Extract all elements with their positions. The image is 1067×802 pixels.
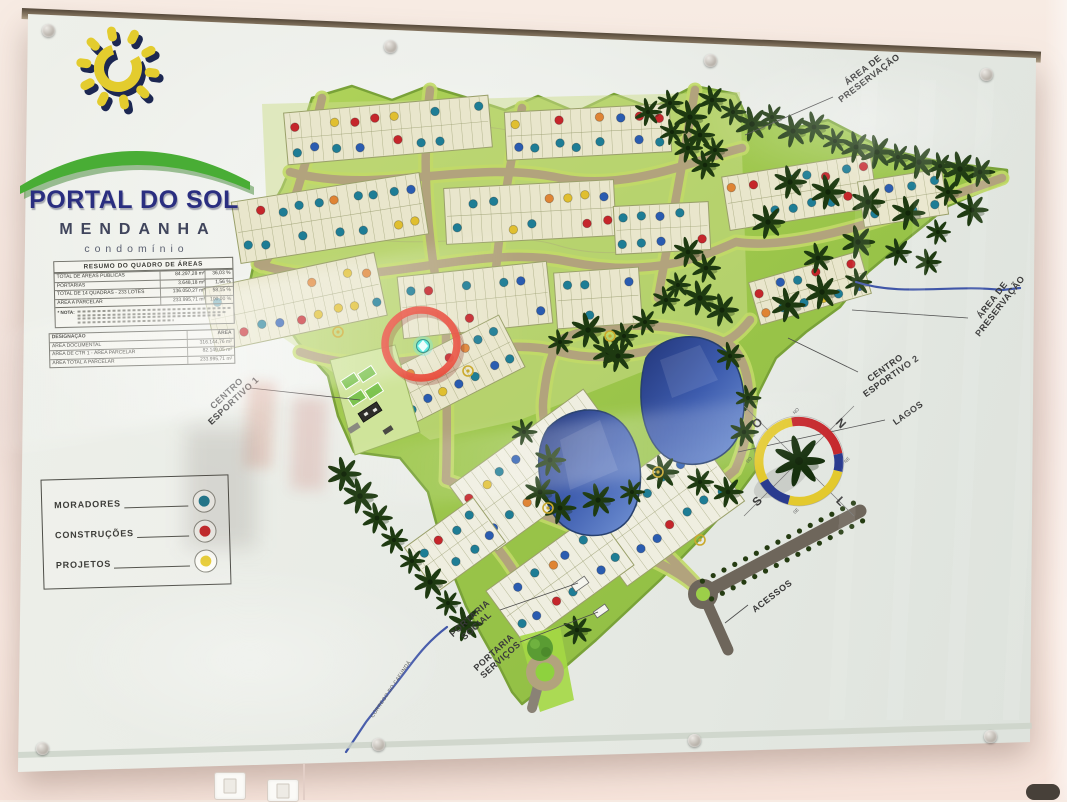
- roadside-tree-icon: [838, 529, 843, 534]
- site-map: CÓRREGO DO CAFUNDÁ: [0, 0, 1067, 800]
- unit-dot: [350, 117, 359, 126]
- unit-dot: [416, 138, 425, 147]
- stream-label: CÓRREGO DO CAFUNDÁ: [369, 659, 413, 719]
- roadside-tree-icon: [763, 568, 768, 573]
- lot-block: [613, 202, 710, 255]
- unit-dot: [616, 113, 625, 122]
- compass-rose: O N S L NO NE SO SE: [744, 406, 854, 516]
- roadside-tree-icon: [808, 523, 813, 528]
- palm-tree-icon: [915, 248, 942, 276]
- roadside-tree-icon: [700, 579, 705, 584]
- unit-dot: [516, 276, 525, 285]
- unit-dot: [530, 143, 539, 152]
- roadside-tree-icon: [731, 585, 736, 590]
- unit-dot: [624, 277, 633, 286]
- unit-dot: [563, 194, 572, 203]
- roadside-tree-icon: [849, 524, 854, 529]
- unit-dot: [489, 197, 498, 206]
- unit-dot: [424, 286, 433, 295]
- row-area: 233.995,71 m²: [160, 296, 205, 305]
- logo-tagline: condomínio: [10, 243, 258, 255]
- unit-dot: [635, 135, 644, 144]
- row-pct: 1,56 %: [205, 278, 231, 286]
- unit-dot: [330, 118, 339, 127]
- roadside-tree-icon: [743, 556, 748, 561]
- unit-dot: [536, 306, 545, 315]
- unit-dot: [511, 120, 520, 129]
- unit-dot: [618, 240, 627, 249]
- roadside-tree-icon: [754, 551, 759, 556]
- unit-dot: [580, 280, 589, 289]
- unit-dot: [389, 112, 398, 121]
- tree-icon: [527, 635, 553, 661]
- roadside-tree-icon: [741, 580, 746, 585]
- header-cell: ÁREA: [187, 330, 232, 339]
- unit-dot: [370, 113, 379, 122]
- designation-table: DESIGNAÇÃO ÁREA ÁREA DOCUMENTAL 316.144,…: [49, 329, 236, 369]
- legend-row: CONSTRUÇÕES: [55, 516, 218, 551]
- lot-block: [444, 180, 617, 245]
- roadside-tree-icon: [784, 557, 789, 562]
- roadside-tree-icon: [818, 517, 823, 522]
- roadside-tree-icon: [774, 563, 779, 568]
- roadside-tree-icon: [829, 512, 834, 517]
- row-area: 316.144,76 m²: [187, 338, 232, 347]
- legend-row: PROJETOS: [55, 546, 218, 581]
- unit-dot: [332, 144, 341, 153]
- roadside-tree-icon: [860, 518, 865, 523]
- unit-dot: [563, 281, 572, 290]
- unit-dot: [509, 225, 518, 234]
- area-summary-table: RESUMO DO QUADRO DE ÁREAS TOTAL DE ÁREAS…: [53, 257, 235, 329]
- unit-dot: [527, 219, 536, 228]
- unit-dot: [430, 107, 439, 116]
- unit-dot: [556, 139, 565, 148]
- legend-label: PROJETOS: [56, 559, 112, 571]
- foreground-object: [1026, 784, 1060, 800]
- unit-dot: [545, 194, 554, 203]
- unit-dot: [406, 286, 415, 295]
- unit-dot: [580, 190, 589, 199]
- logo-graphic: [20, 26, 254, 199]
- note-label: * NOTA:: [57, 310, 75, 326]
- light-switch: [267, 779, 299, 802]
- unit-dot: [657, 237, 666, 246]
- unit-dot: [675, 208, 684, 217]
- unit-dot: [290, 123, 299, 132]
- unit-dot: [698, 234, 707, 243]
- row-pct: 36,03 %: [204, 270, 230, 278]
- unit-dot: [599, 192, 608, 201]
- roadside-tree-icon: [775, 540, 780, 545]
- note-text-illegible: [78, 306, 232, 325]
- row-area: 136.050,27 m²: [160, 288, 205, 297]
- row-area: 84.297,28 m²: [159, 271, 204, 280]
- legend-dot-moradores: [192, 489, 217, 514]
- wall-seam: [303, 764, 305, 800]
- legend-leader-line: [137, 535, 189, 538]
- roadside-tree-icon: [797, 528, 802, 533]
- row-area: 233.995,71 m²: [187, 355, 232, 364]
- roadside-tree-icon: [851, 501, 856, 506]
- legend-leader-line: [114, 565, 190, 569]
- unit-dot: [619, 213, 628, 222]
- roadside-tree-icon: [752, 574, 757, 579]
- mounting-screw: [704, 54, 717, 67]
- legend-dot-construcoes: [193, 519, 218, 544]
- unit-dot: [603, 216, 612, 225]
- unit-dot: [499, 278, 508, 287]
- unit-dot: [465, 313, 474, 322]
- row-area: 82.149,05 m²: [187, 347, 232, 356]
- glass-board: CÓRREGO DO CAFUNDÁ: [0, 0, 1067, 800]
- logo-subtitle: MENDANHA: [10, 221, 258, 239]
- unit-dot: [637, 211, 646, 220]
- compass-tick: SE: [792, 507, 800, 515]
- unit-dot: [293, 148, 302, 157]
- roadside-tree-icon: [795, 552, 800, 557]
- unit-dot: [582, 219, 591, 228]
- roadside-tree-icon: [711, 573, 716, 578]
- palm-tree-icon: [380, 526, 408, 554]
- light-switch: [214, 772, 246, 800]
- mounting-screw: [372, 738, 385, 751]
- map-label: LAGOS: [891, 399, 925, 427]
- roadside-tree-icon: [806, 546, 811, 551]
- unit-dot: [355, 143, 364, 152]
- unit-dot: [393, 135, 402, 144]
- mounting-screw: [980, 68, 993, 81]
- unit-dot: [469, 199, 478, 208]
- photo-of-map-board: CÓRREGO DO CAFUNDÁ: [0, 0, 1067, 800]
- unit-dot: [474, 102, 483, 111]
- roadside-tree-icon: [721, 567, 726, 572]
- unit-dot: [596, 137, 605, 146]
- unit-dot: [572, 143, 581, 152]
- unit-dot: [655, 137, 664, 146]
- roadside-tree-icon: [786, 534, 791, 539]
- legend-label: MORADORES: [54, 498, 121, 510]
- row-pct: 100,00 %: [205, 295, 231, 303]
- row-area: 3.648,18 m²: [160, 279, 205, 288]
- mounting-screw: [688, 734, 701, 747]
- legend-row: MORADORES: [54, 486, 217, 521]
- map-label: ACESSOS: [750, 578, 794, 615]
- unit-dot: [462, 281, 471, 290]
- unit-dot: [310, 142, 319, 151]
- unit-dot: [637, 239, 646, 248]
- legend-leader-line: [124, 505, 188, 509]
- roadside-tree-icon: [765, 545, 770, 550]
- unit-dot: [453, 223, 462, 232]
- unit-dot: [554, 116, 563, 125]
- mounting-screw: [36, 742, 49, 755]
- mounting-screw: [42, 24, 55, 37]
- map-legend: MORADORES CONSTRUÇÕES PROJETOS: [41, 474, 232, 589]
- unit-dot: [595, 113, 604, 122]
- compass-tick: NO: [792, 406, 801, 415]
- mounting-screw: [384, 40, 397, 53]
- roadside-tree-icon: [720, 591, 725, 596]
- unit-dot: [435, 137, 444, 146]
- roadside-tree-icon: [709, 596, 714, 601]
- unit-dot: [514, 143, 523, 152]
- roadside-tree-icon: [828, 535, 833, 540]
- row-pct: 58,15 %: [205, 287, 231, 295]
- legend-dot-projetos: [194, 549, 219, 574]
- unit-dot: [655, 212, 664, 221]
- legend-label: CONSTRUÇÕES: [55, 528, 134, 540]
- logo-title: PORTAL DO SOL: [10, 186, 258, 215]
- roadside-tree-icon: [817, 541, 822, 546]
- compass-cardinal: L: [833, 494, 848, 509]
- mounting-screw: [984, 730, 997, 743]
- roadside-tree-icon: [732, 562, 737, 567]
